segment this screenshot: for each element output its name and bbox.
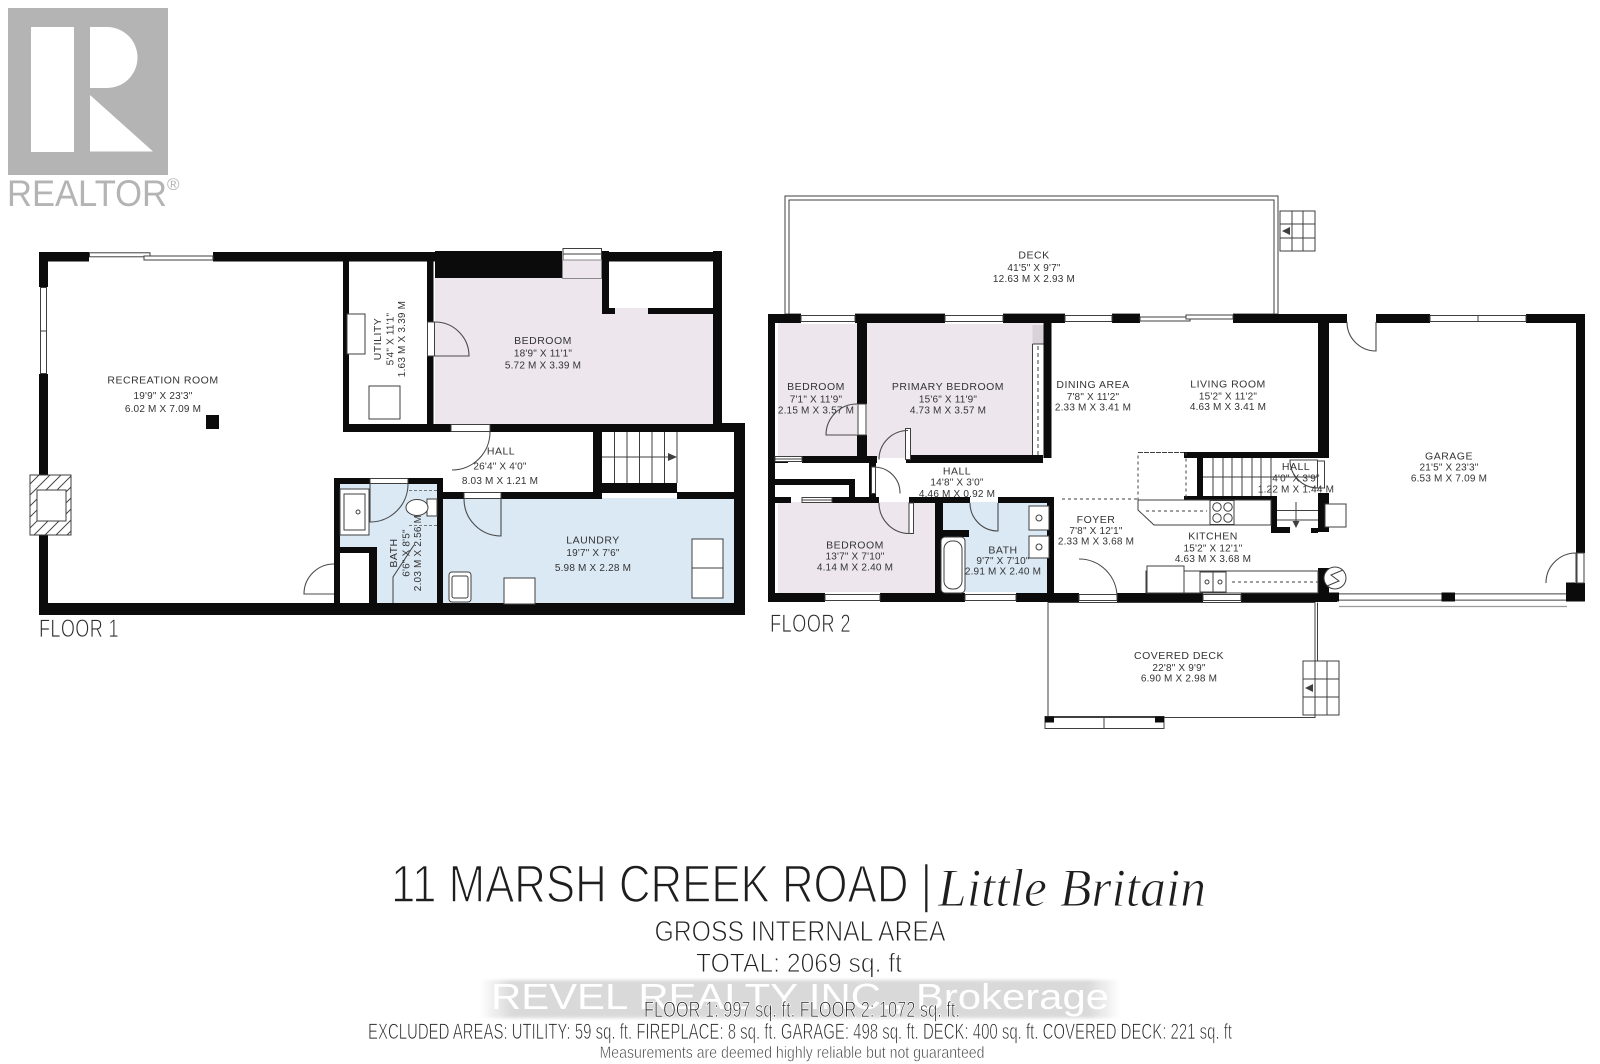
svg-text:41'5" X 9'7": 41'5" X 9'7" (1007, 263, 1061, 274)
svg-text:LIVING ROOM: LIVING ROOM (1190, 379, 1266, 391)
svg-text:8.03 M X 1.21 M: 8.03 M X 1.21 M (462, 476, 538, 487)
svg-text:HALL: HALL (1282, 461, 1310, 473)
svg-text:19'7" X 7'6": 19'7" X 7'6" (566, 548, 620, 559)
svg-text:KITCHEN: KITCHEN (1188, 531, 1238, 543)
svg-text:4.46 M X 0.92 M: 4.46 M X 0.92 M (919, 489, 995, 500)
svg-text:4.63 M X 3.41 M: 4.63 M X 3.41 M (1190, 402, 1266, 413)
svg-text:1.22 M X 1.44 M: 1.22 M X 1.44 M (1258, 485, 1334, 496)
svg-text:REALTOR: REALTOR (7, 173, 167, 214)
svg-text:19'9" X 23'3": 19'9" X 23'3" (133, 391, 192, 402)
svg-text:HALL: HALL (943, 466, 971, 478)
svg-text:6.53 M X 7.09 M: 6.53 M X 7.09 M (1411, 474, 1487, 485)
svg-text:6.90 M X 2.98 M: 6.90 M X 2.98 M (1141, 674, 1217, 685)
svg-text:2.91 M X 2.40 M: 2.91 M X 2.40 M (965, 567, 1041, 578)
svg-text:14'8" X 3'0": 14'8" X 3'0" (930, 478, 984, 489)
svg-text:FLOOR 1: FLOOR 1 (39, 615, 119, 643)
svg-text:1.63 M X 3.39 M: 1.63 M X 3.39 M (397, 301, 408, 377)
svg-text:5.98 M X 2.28 M: 5.98 M X 2.28 M (555, 563, 631, 574)
svg-text:13'7" X 7'10": 13'7" X 7'10" (825, 552, 884, 563)
svg-text:®: ® (167, 175, 180, 194)
svg-text:21'5" X 23'3": 21'5" X 23'3" (1419, 463, 1478, 474)
svg-text:PRIMARY BEDROOM: PRIMARY BEDROOM (892, 381, 1004, 393)
svg-text:5.72 M X 3.39 M: 5.72 M X 3.39 M (505, 361, 581, 372)
svg-text:5'4" X 11'1": 5'4" X 11'1" (386, 312, 397, 365)
svg-text:4'0" X 3'9": 4'0" X 3'9" (1272, 474, 1320, 485)
svg-text:7'8" X 11'2": 7'8" X 11'2" (1067, 392, 1120, 403)
svg-text:BEDROOM: BEDROOM (787, 381, 845, 393)
svg-text:12.63 M X 2.93 M: 12.63 M X 2.93 M (993, 274, 1075, 285)
svg-text:18'9" X 11'1": 18'9" X 11'1" (514, 349, 573, 360)
svg-text:Measurements are deemed highly: Measurements are deemed highly reliable … (600, 1043, 985, 1062)
svg-text:BEDROOM: BEDROOM (826, 540, 884, 552)
svg-text:COVERED DECK: COVERED DECK (1134, 650, 1224, 662)
svg-text:BATH: BATH (388, 538, 400, 567)
svg-text:UTILITY: UTILITY (372, 318, 384, 361)
svg-text:4.73 M X 3.57 M: 4.73 M X 3.57 M (910, 406, 986, 417)
svg-text:4.14 M X 2.40 M: 4.14 M X 2.40 M (817, 563, 893, 574)
svg-text:2.33 M X 3.41 M: 2.33 M X 3.41 M (1055, 403, 1131, 414)
svg-text:GARAGE: GARAGE (1425, 451, 1473, 463)
svg-text:15'2" X 11'2": 15'2" X 11'2" (1199, 392, 1258, 403)
svg-text:GROSS INTERNAL AREA: GROSS INTERNAL AREA (655, 916, 947, 948)
svg-text:11 MARSH CREEK ROAD |: 11 MARSH CREEK ROAD | (391, 855, 932, 914)
svg-text:HALL: HALL (487, 446, 515, 458)
svg-text:2.03 M X 2.56 M: 2.03 M X 2.56 M (413, 515, 424, 591)
svg-text:9'7" X 7'10": 9'7" X 7'10" (976, 556, 1030, 567)
svg-text:LAUNDRY: LAUNDRY (566, 535, 620, 547)
svg-text:DECK: DECK (1018, 250, 1049, 262)
svg-text:Little Britain: Little Britain (937, 858, 1206, 918)
svg-text:4.63 M X 3.68 M: 4.63 M X 3.68 M (1175, 554, 1251, 565)
svg-text:RECREATION ROOM: RECREATION ROOM (107, 375, 218, 387)
svg-text:15'2" X 12'1": 15'2" X 12'1" (1183, 544, 1242, 555)
svg-text:BATH: BATH (988, 545, 1017, 557)
svg-text:FOYER: FOYER (1077, 514, 1116, 526)
svg-text:7'1" X 11'9": 7'1" X 11'9" (790, 395, 843, 406)
svg-text:BEDROOM: BEDROOM (514, 335, 572, 347)
svg-text:6.02 M X 7.09 M: 6.02 M X 7.09 M (125, 404, 201, 415)
svg-text:2.33 M X 3.68 M: 2.33 M X 3.68 M (1058, 537, 1134, 548)
svg-text:22'8" X 9'9": 22'8" X 9'9" (1152, 663, 1206, 674)
svg-text:TOTAL: 2069 sq. ft: TOTAL: 2069 sq. ft (696, 948, 902, 978)
svg-text:26'4" X 4'0": 26'4" X 4'0" (473, 462, 527, 473)
svg-text:2.15 M X 3.57 M: 2.15 M X 3.57 M (778, 406, 854, 417)
svg-text:DINING AREA: DINING AREA (1056, 379, 1129, 391)
svg-text:15'6" X 11'9": 15'6" X 11'9" (919, 395, 978, 406)
svg-text:6'6" X 8'5": 6'6" X 8'5" (402, 529, 413, 577)
svg-text:FLOOR 2: FLOOR 2 (770, 610, 851, 638)
svg-text:7'8" X 12'1": 7'8" X 12'1" (1069, 526, 1123, 537)
svg-text:EXCLUDED AREAS: UTILITY: 59 sq: EXCLUDED AREAS: UTILITY: 59 sq. ft. FIRE… (368, 1019, 1232, 1044)
